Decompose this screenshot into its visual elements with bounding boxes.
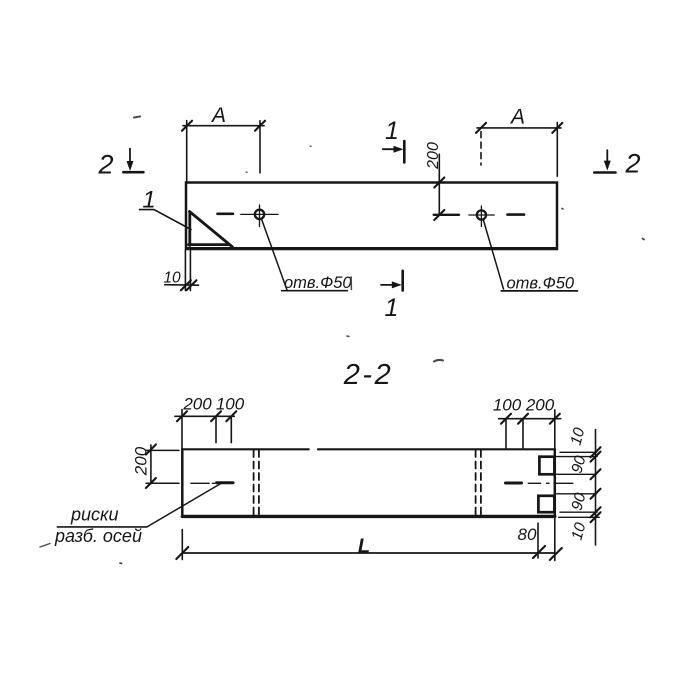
svg-text:A: A [210,104,226,127]
svg-text:разб. осей: разб. осей [54,526,142,546]
svg-text:L: L [358,536,370,558]
svg-text:2-2: 2-2 [343,359,393,391]
svg-text:10: 10 [568,426,589,447]
svg-text:отв.Ф50: отв.Ф50 [507,275,575,293]
svg-text:100: 100 [216,395,245,414]
svg-text:A: A [509,106,525,129]
svg-text:200: 200 [425,142,442,170]
svg-text:10: 10 [569,521,590,542]
svg-text:2: 2 [97,150,113,180]
svg-text:1: 1 [385,117,399,145]
svg-text:1: 1 [385,294,399,322]
svg-text:200: 200 [525,396,555,415]
svg-text:2: 2 [624,149,640,179]
svg-text:80: 80 [518,525,537,544]
svg-text:200: 200 [132,446,151,476]
svg-text:200: 200 [182,395,212,414]
svg-text:10: 10 [163,270,181,287]
svg-text:100: 100 [493,396,522,415]
svg-text:риски: риски [70,505,119,525]
svg-text:отв.Ф50: отв.Ф50 [284,274,352,292]
